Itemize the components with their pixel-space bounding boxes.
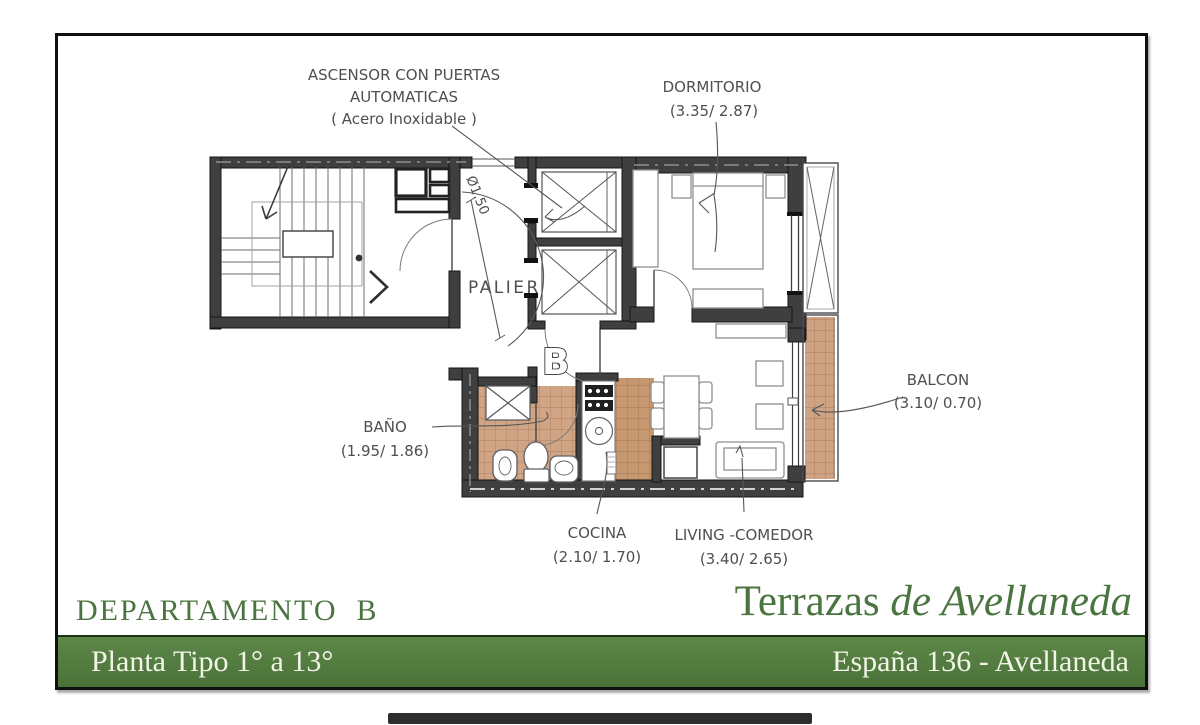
kitchen [582,381,616,481]
label-cocina-dims: (2.10/ 1.70) [553,548,641,566]
bedroom-door [654,270,692,308]
label-living: LIVING -COMEDOR [675,526,814,544]
label-cocina: COCINA [568,524,627,542]
label-ascensor-2: AUTOMATICAS [350,88,458,106]
refrigerator [664,447,697,478]
label-palier: PALIER [468,278,541,298]
unit-letter-badge: B [542,342,569,383]
palier-top-vent [472,159,515,166]
shower [486,386,530,420]
page: Planta Tipo 1° a 13° España 136 - Avella… [0,0,1200,725]
label-turning-diameter: Ø1.50 [462,174,492,218]
armchair-2 [756,404,783,429]
label-balcon: BALCON [907,371,969,389]
label-bano: BAÑO [363,417,407,436]
label-dormitorio-dims: (3.35/ 2.87) [670,102,758,120]
balcony-door [788,342,799,466]
label-living-dims: (3.40/ 2.65) [700,550,788,568]
elevator-shaft-2 [542,250,616,314]
air-shaft [803,163,838,313]
floor-plan-svg: ASCENSOR CON PUERTAS AUTOMATICAS ( Acero… [0,0,1200,725]
bottom-shadow-strip [388,713,812,724]
staircase [221,164,387,317]
dining-table [664,376,699,438]
label-bano-dims: (1.95/ 1.86) [341,442,429,460]
bedroom-window [792,215,799,292]
label-ascensor-3: ( Acero Inoxidable ) [331,110,477,128]
armchair-1 [756,361,783,386]
label-balcon-dims: (3.10/ 0.70) [894,394,982,412]
label-ascensor-1: ASCENSOR CON PUERTAS [308,66,500,84]
kitchen-sink [586,418,613,445]
label-dormitorio: DORMITORIO [663,78,762,96]
service-ducts [396,169,449,212]
stair-hall-door [400,219,452,271]
